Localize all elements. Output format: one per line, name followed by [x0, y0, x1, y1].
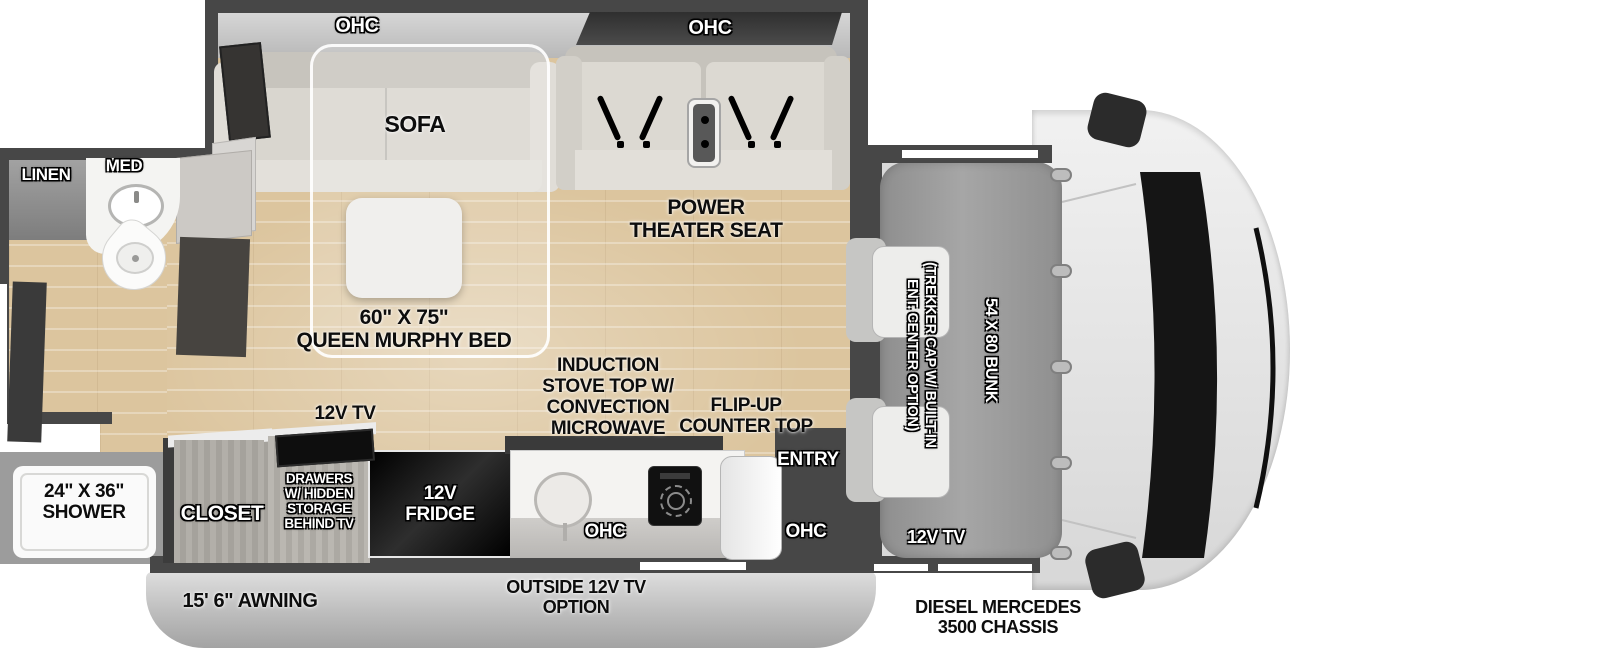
bath-window-frame	[0, 284, 7, 440]
label-ohc-entry: OHC	[776, 522, 836, 543]
recline-dot-icon	[643, 141, 650, 148]
cupholder-icon	[701, 116, 709, 124]
wall-slide-top	[205, 0, 868, 13]
recline-dot-icon	[748, 141, 755, 148]
label-tv-cab: 12V TV	[896, 528, 976, 548]
label-tv-main: 12V TV	[295, 404, 395, 425]
cupholder-icon	[701, 140, 709, 148]
front-cap-window	[902, 150, 1038, 158]
label-flip-up: FLIP-UP COUNTER TOP	[666, 396, 826, 438]
kitchen-sink-icon	[534, 472, 592, 528]
faucet-icon	[563, 523, 567, 541]
bunk-hinge-tab-icon	[1050, 456, 1072, 470]
recline-dot-icon	[774, 141, 781, 148]
label-shower: 24" X 36" SHOWER	[16, 482, 152, 524]
label-bunk: 54 X 80 BUNK	[976, 258, 1006, 443]
label-outside-tv: OUTSIDE 12V TV OPTION	[478, 578, 674, 618]
wardrobe-door-panel	[176, 237, 250, 357]
label-ohc-sofa: OHC	[307, 15, 407, 37]
lift-tv-icon	[275, 429, 375, 468]
bath-window-icon	[7, 281, 47, 442]
bunk-hinge-tab-icon	[1050, 360, 1072, 374]
windshield-icon	[1032, 90, 1300, 620]
label-ohc-counter: OHC	[575, 522, 635, 543]
cab-wall-window-1	[874, 564, 928, 571]
label-bed-name: QUEEN MURPHY BED	[296, 329, 512, 352]
label-closet: CLOSET	[176, 502, 268, 525]
label-bed-size: 60" X 75"	[344, 306, 464, 329]
label-drawers: DRAWERS W/ HIDDEN STORAGE BEHIND TV	[270, 472, 368, 531]
entry-door	[720, 456, 782, 560]
bunk-hinge-tab-icon	[1050, 168, 1072, 182]
label-ohc-theater: OHC	[660, 17, 760, 39]
cooktop-slot	[660, 473, 690, 479]
label-awning: 15' 6" AWNING	[160, 590, 340, 612]
label-sofa: SOFA	[355, 112, 475, 137]
console-inset	[693, 104, 715, 162]
theater-console	[687, 98, 721, 168]
bunk-hinge-tab-icon	[1050, 264, 1072, 278]
wardrobe-cabinet	[176, 150, 252, 244]
label-fridge: 12V FRIDGE	[388, 484, 492, 526]
murphy-bed-pillow	[346, 198, 462, 298]
bunk-hinge-tab-icon	[1050, 546, 1072, 560]
label-theater-seat: POWER THEATER SEAT	[626, 196, 786, 242]
faucet-dot	[134, 191, 139, 203]
recline-dot-icon	[617, 141, 624, 148]
flush-dot	[132, 255, 139, 262]
label-med: MED	[94, 157, 154, 176]
label-chassis: DIESEL MERCEDES 3500 CHASSIS	[890, 598, 1106, 638]
floorplan-canvas: OHC OHC SOFA POWER THEATER SEAT 60" X 75…	[0, 0, 1600, 671]
toilet-bowl-icon	[116, 242, 154, 274]
burner-ring-inner-icon	[667, 492, 685, 510]
wall-right-top	[850, 0, 868, 165]
entry-threshold	[640, 562, 746, 570]
label-trekker-cap: (TREKKER CAP W/ BUILT-IN ENT. CENTER OPT…	[896, 205, 946, 505]
cooktop-icon	[648, 466, 702, 526]
label-linen: LINEN	[8, 166, 84, 185]
cab-wall-window-2	[938, 564, 1032, 571]
label-entry: ENTRY	[775, 450, 841, 471]
